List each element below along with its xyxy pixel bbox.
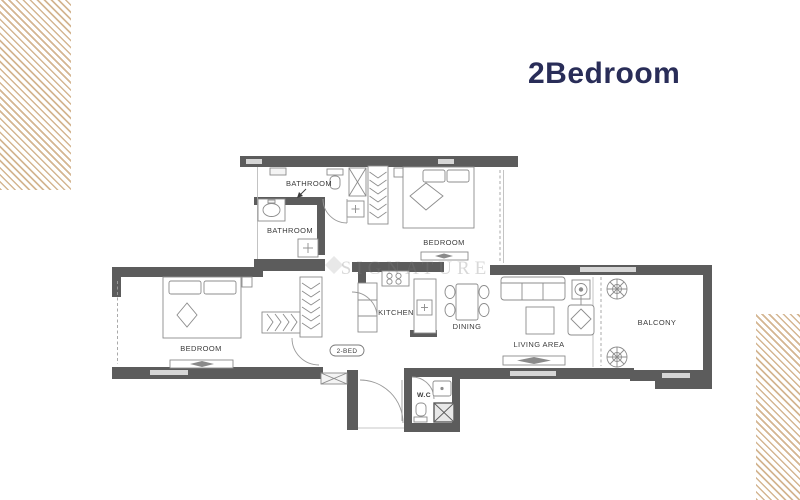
toilet-icon xyxy=(414,403,427,422)
bedroom-left-furniture xyxy=(163,277,322,368)
decor-stripes-top-left xyxy=(0,0,71,190)
dining-label: DINING xyxy=(453,322,482,331)
living-furniture xyxy=(501,277,594,365)
armchair-icon xyxy=(568,305,594,335)
entry-wc-fixtures xyxy=(321,373,454,428)
wardrobe-icon xyxy=(300,277,322,337)
page-title: 2Bedroom xyxy=(528,57,680,91)
unit-badge: 2-BED xyxy=(330,345,364,356)
balcony-label: BALCONY xyxy=(638,318,677,327)
cabinet-icon xyxy=(321,373,347,384)
floorplan-page: 2Bedroom xyxy=(0,0,800,500)
dining-table-icon xyxy=(445,284,489,320)
wc-label: W.C xyxy=(417,392,431,399)
plant-icon xyxy=(607,347,627,367)
balcony-fixtures xyxy=(607,279,627,367)
toilet-icon xyxy=(327,169,343,175)
floor-lamp-icon xyxy=(572,280,590,306)
bedroom-left-label: BEDROOM xyxy=(180,344,222,353)
sink-icon xyxy=(433,381,451,396)
wardrobe-icon xyxy=(262,312,300,333)
watermark: SIGNATURE xyxy=(325,256,491,279)
kitchen-label: KITCHEN xyxy=(378,308,414,317)
sofa-icon xyxy=(501,277,565,300)
plant-icon xyxy=(607,279,627,299)
coffee-table-icon xyxy=(526,307,554,334)
bathroom-top-arrow xyxy=(297,189,306,198)
wardrobe-icon xyxy=(368,166,388,224)
sink-icon xyxy=(417,300,432,315)
living-label: LIVING AREA xyxy=(513,340,564,349)
shower-icon xyxy=(434,403,454,422)
unit-badge-label: 2-BED xyxy=(337,348,358,355)
dining-furniture xyxy=(445,284,489,320)
bathroom-main-label: BATHROOM xyxy=(267,226,313,235)
watermark-text: SIGNATURE xyxy=(341,258,492,279)
bathroom-top-label: BATHROOM xyxy=(286,179,332,188)
entry-door-arc xyxy=(360,380,403,423)
bedroom-top-label: BEDROOM xyxy=(423,238,465,247)
decor-stripes-bottom-right xyxy=(756,314,800,500)
